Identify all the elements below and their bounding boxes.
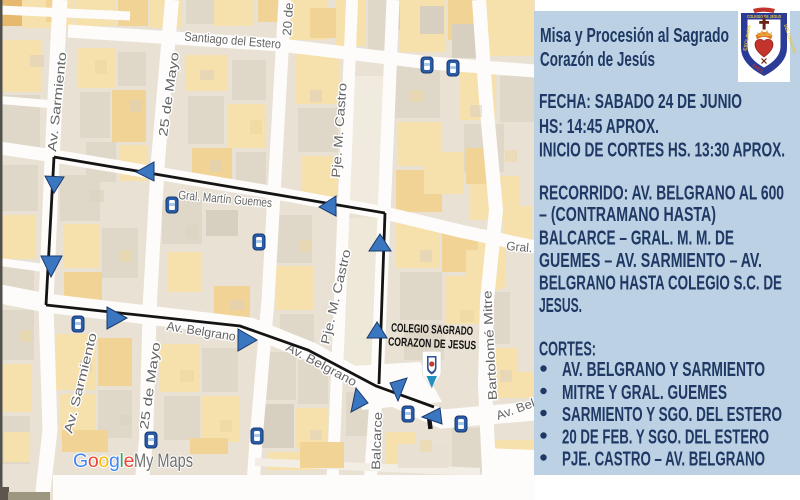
svg-text:Corazón de Jesús: Corazón de Jesús	[540, 48, 655, 71]
svg-text:AV. BELGRANO Y SARMIENTO: AV. BELGRANO Y SARMIENTO	[562, 358, 765, 381]
svg-text:MITRE Y GRAL. GUEMES: MITRE Y GRAL. GUEMES	[562, 381, 727, 404]
svg-text:Misa y Procesión al Sagrado: Misa y Procesión al Sagrado	[540, 24, 729, 47]
svg-text:GUEMES – AV. SARMIENTO – AV.: GUEMES – AV. SARMIENTO – AV.	[539, 249, 762, 272]
svg-text:RECORRIDO: AV. BELGRANO AL 600: RECORRIDO: AV. BELGRANO AL 600	[539, 182, 784, 205]
svg-text:Gral.: Gral.	[506, 239, 533, 255]
svg-text:HS: 14:45 APROX.: HS: 14:45 APROX.	[539, 115, 659, 138]
svg-text:Balcarce: Balcarce	[369, 412, 385, 471]
svg-text:BALCARCE – GRAL. M. M. DE: BALCARCE – GRAL. M. M. DE	[539, 227, 734, 250]
svg-text:SARMIENTO Y SGO. DEL ESTERO: SARMIENTO Y SGO. DEL ESTERO	[562, 403, 782, 426]
svg-text:JESUS.: JESUS.	[539, 294, 582, 317]
svg-text:PJE. CASTRO – AV. BELGRANO: PJE. CASTRO – AV. BELGRANO	[562, 448, 765, 471]
svg-text:– (CONTRAMANO HASTA): – (CONTRAMANO HASTA)	[539, 203, 716, 226]
svg-text:Google: Google	[73, 450, 134, 472]
svg-text:FECHA: SABADO 24 DE JUNIO: FECHA: SABADO 24 DE JUNIO	[539, 90, 742, 113]
svg-text:INICIO DE CORTES HS. 13:30 APR: INICIO DE CORTES HS. 13:30 APROX.	[539, 139, 785, 162]
svg-text:My Maps: My Maps	[134, 450, 193, 472]
svg-text:20 DE FEB. Y SGO. DEL ESTERO: 20 DE FEB. Y SGO. DEL ESTERO	[562, 426, 769, 449]
svg-text:BELGRANO HASTA COLEGIO S.C. DE: BELGRANO HASTA COLEGIO S.C. DE	[539, 272, 782, 295]
